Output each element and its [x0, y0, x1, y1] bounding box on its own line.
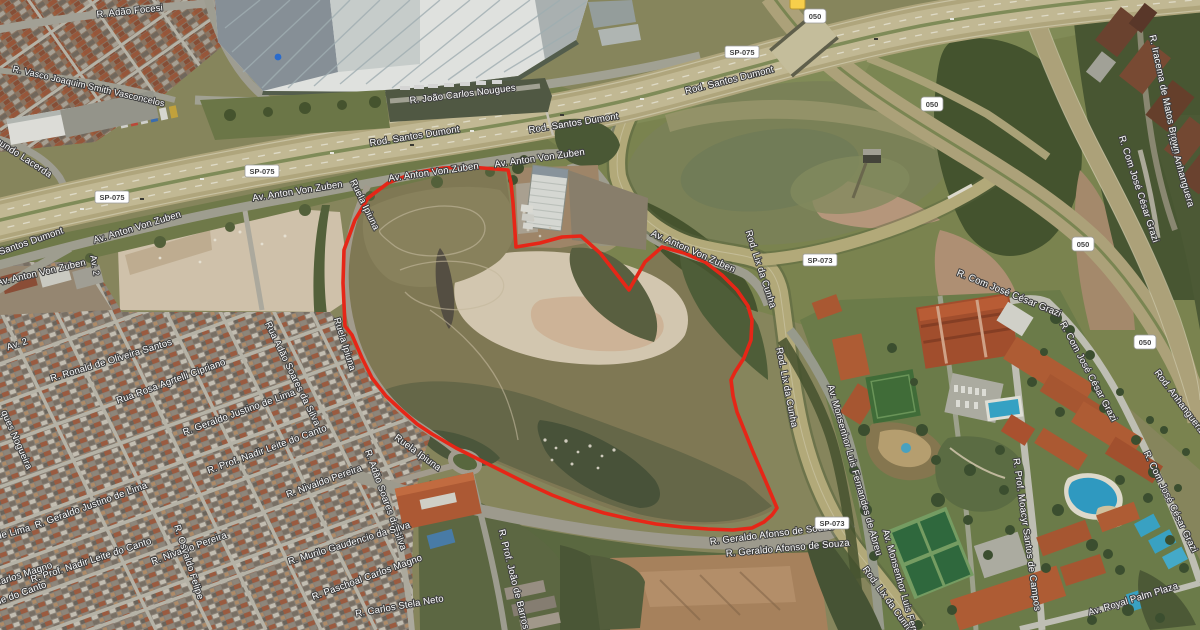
svg-text:SP-075: SP-075 — [99, 193, 124, 202]
svg-text:SP-073: SP-073 — [807, 256, 832, 265]
svg-text:SP-075: SP-075 — [729, 48, 754, 57]
svg-text:050: 050 — [1139, 338, 1152, 347]
svg-text:050: 050 — [926, 100, 939, 109]
svg-text:050: 050 — [1077, 240, 1090, 249]
svg-text:SP-073: SP-073 — [819, 519, 844, 528]
svg-text:SP-075: SP-075 — [249, 167, 274, 176]
svg-text:050: 050 — [809, 12, 822, 21]
